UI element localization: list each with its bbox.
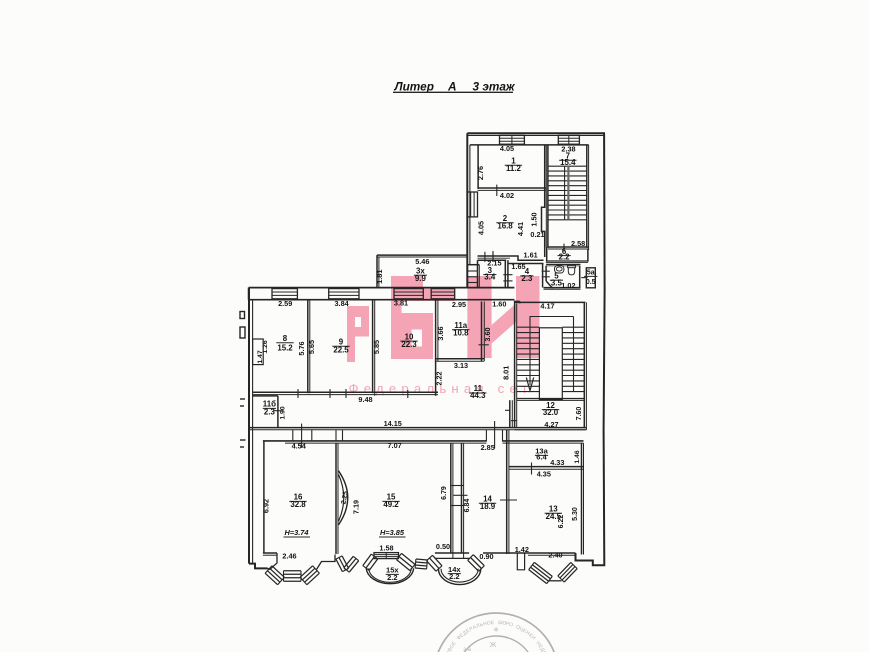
- svg-text:3.13: 3.13: [454, 361, 468, 370]
- svg-text:1.46: 1.46: [574, 450, 581, 463]
- svg-text:7.60: 7.60: [576, 407, 583, 421]
- svg-text:1.50: 1.50: [529, 212, 538, 226]
- svg-text:4.33: 4.33: [550, 458, 564, 467]
- svg-text:8.01: 8.01: [502, 366, 511, 380]
- svg-text:3.66: 3.66: [436, 326, 445, 340]
- svg-text:1.61: 1.61: [523, 250, 537, 259]
- svg-text:2.58: 2.58: [571, 239, 585, 248]
- svg-text:3 этаж: 3 этаж: [473, 80, 516, 94]
- svg-text:32.0: 32.0: [543, 408, 559, 417]
- svg-text:5.30: 5.30: [572, 507, 579, 521]
- svg-text:44.3: 44.3: [470, 391, 486, 400]
- svg-text:15.2: 15.2: [277, 344, 293, 353]
- svg-text:22.5: 22.5: [333, 346, 349, 355]
- svg-text:14.15: 14.15: [384, 419, 402, 428]
- svg-text:32.8: 32.8: [290, 500, 306, 509]
- svg-text:2.76: 2.76: [476, 166, 485, 180]
- svg-text:11.2: 11.2: [506, 164, 522, 173]
- svg-text:5.76: 5.76: [297, 341, 306, 355]
- svg-text:2.2: 2.2: [559, 253, 571, 262]
- svg-text:3.81: 3.81: [394, 299, 408, 308]
- svg-text:6.79: 6.79: [441, 486, 448, 500]
- svg-text:2.2: 2.2: [449, 572, 459, 581]
- svg-text:Литер: Литер: [394, 80, 434, 94]
- svg-text:2.95: 2.95: [452, 300, 466, 309]
- svg-text:4.05: 4.05: [500, 144, 514, 153]
- svg-text:H=3.85: H=3.85: [380, 528, 405, 537]
- svg-text:1.65: 1.65: [511, 262, 525, 271]
- svg-text:5.85: 5.85: [372, 340, 381, 354]
- svg-text:4.54: 4.54: [292, 441, 307, 450]
- svg-text:5а: 5а: [587, 270, 595, 277]
- svg-text:4.41: 4.41: [516, 222, 525, 236]
- svg-text:1.42: 1.42: [515, 545, 529, 554]
- svg-text:1.81: 1.81: [375, 270, 384, 284]
- svg-text:0.5: 0.5: [586, 279, 596, 286]
- svg-text:H=3.74: H=3.74: [284, 528, 308, 537]
- svg-text:6.22: 6.22: [558, 515, 565, 529]
- svg-text:2.59: 2.59: [278, 299, 292, 308]
- svg-text:9.9: 9.9: [415, 274, 427, 283]
- svg-text:22.3: 22.3: [401, 340, 417, 349]
- svg-text:8: 8: [283, 334, 288, 343]
- svg-text:1.90: 1.90: [280, 406, 287, 419]
- svg-text:2.46: 2.46: [282, 551, 296, 560]
- svg-text:2.2: 2.2: [387, 573, 397, 582]
- svg-text:4.02: 4.02: [500, 191, 514, 200]
- svg-text:1.60: 1.60: [492, 299, 506, 308]
- svg-text:✳: ✳: [493, 626, 499, 634]
- svg-text:4.35: 4.35: [537, 469, 551, 478]
- svg-text:Ж: Ж: [490, 642, 497, 649]
- svg-text:7.19: 7.19: [352, 500, 361, 514]
- svg-text:6.4: 6.4: [536, 453, 547, 462]
- svg-text:2.3: 2.3: [521, 274, 533, 283]
- svg-text:49.2: 49.2: [383, 500, 399, 509]
- svg-text:4.17: 4.17: [540, 301, 554, 310]
- svg-text:1.58: 1.58: [379, 544, 393, 553]
- svg-text:2.3: 2.3: [264, 407, 276, 416]
- svg-text:5.65: 5.65: [307, 340, 316, 354]
- svg-text:1.02: 1.02: [561, 281, 575, 290]
- svg-text:5.46: 5.46: [415, 257, 429, 266]
- svg-text:4.05: 4.05: [476, 221, 485, 235]
- svg-text:15.4: 15.4: [560, 158, 576, 167]
- svg-text:16.8: 16.8: [497, 221, 513, 230]
- svg-text:А: А: [447, 80, 457, 94]
- svg-text:7.07: 7.07: [387, 441, 401, 450]
- svg-text:3.4: 3.4: [484, 273, 496, 282]
- svg-text:3.60: 3.60: [483, 327, 492, 341]
- svg-text:9.48: 9.48: [358, 395, 372, 404]
- svg-text:6.92: 6.92: [261, 499, 270, 513]
- svg-text:10.8: 10.8: [453, 329, 469, 338]
- svg-text:2.22: 2.22: [434, 371, 443, 385]
- svg-text:18.9: 18.9: [480, 502, 496, 511]
- svg-text:4.27: 4.27: [544, 420, 558, 429]
- svg-text:2.85: 2.85: [481, 443, 495, 452]
- svg-text:0.50: 0.50: [436, 542, 450, 551]
- svg-text:6.84: 6.84: [464, 499, 471, 513]
- svg-text:з а: з а: [463, 647, 471, 652]
- svg-text:3.84: 3.84: [334, 299, 349, 308]
